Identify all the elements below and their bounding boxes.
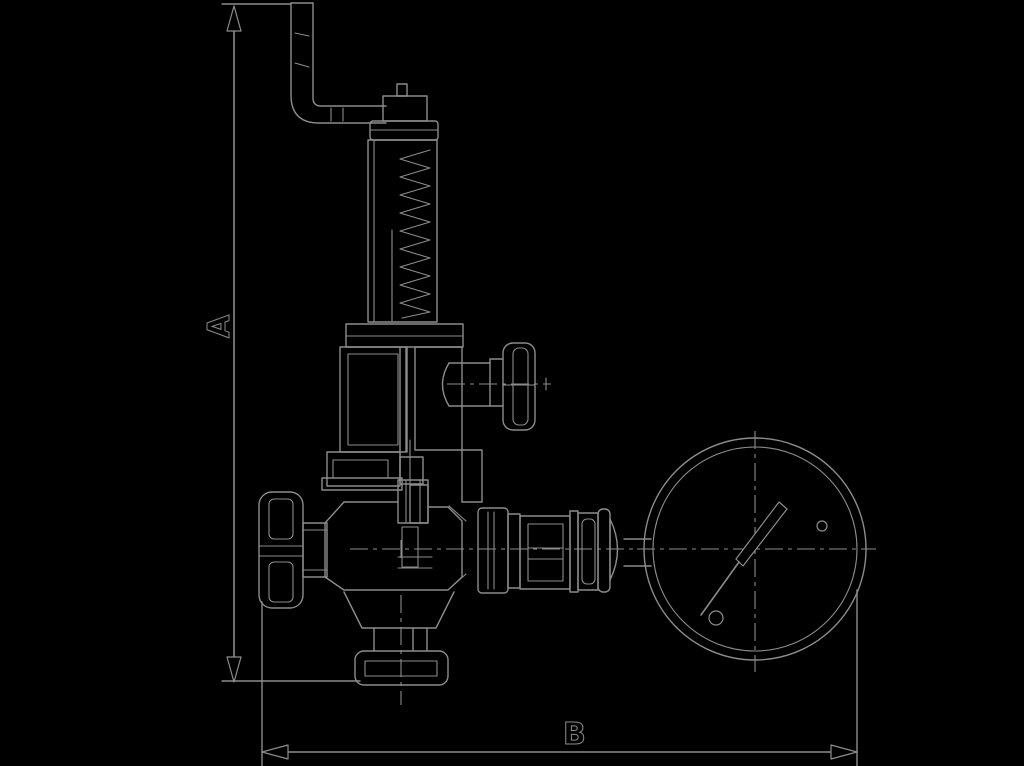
gauge-pipe bbox=[624, 539, 651, 566]
technical-drawing-canvas: A bbox=[0, 0, 1024, 766]
valve-with-gauge-drawing: A bbox=[0, 0, 1024, 766]
knob-outer bbox=[503, 343, 535, 430]
lever-bracket bbox=[291, 3, 386, 123]
union-flange bbox=[322, 452, 423, 490]
handwheel-rim bbox=[259, 492, 303, 608]
body-outline bbox=[325, 502, 462, 590]
knob-stem bbox=[490, 359, 503, 406]
body-top-flange bbox=[322, 478, 402, 490]
handwheel-stem bbox=[303, 523, 327, 577]
gauge-couplings bbox=[478, 508, 651, 593]
gauge-needle bbox=[736, 502, 787, 566]
dimension-b-label: B bbox=[563, 717, 586, 752]
gauge-screw-icon bbox=[817, 521, 827, 531]
outlet-assembly bbox=[344, 592, 454, 705]
spindle-column bbox=[410, 485, 428, 523]
cap-stem bbox=[397, 84, 407, 96]
spring-housing bbox=[346, 140, 463, 347]
knob-inner bbox=[513, 348, 528, 425]
gauge-screw-icon bbox=[709, 611, 723, 625]
gauge-needle-tail bbox=[701, 562, 739, 615]
dimension-a-arrow-bottom-icon bbox=[227, 657, 241, 682]
dimension-b-arrow-left-icon bbox=[262, 745, 288, 759]
cap-body bbox=[383, 96, 427, 121]
handwheel bbox=[259, 492, 327, 608]
pressure-gauge bbox=[637, 431, 876, 672]
handwheel-hub bbox=[259, 546, 303, 556]
spring-coil bbox=[400, 150, 430, 318]
gland bbox=[400, 440, 410, 483]
dimension-b: B bbox=[262, 590, 857, 766]
body-taper bbox=[344, 592, 454, 628]
bracket-outer-edge bbox=[291, 3, 386, 123]
left-chamber bbox=[340, 347, 406, 452]
chamfer-hatch bbox=[449, 506, 466, 589]
dimension-a-label: A bbox=[202, 314, 237, 338]
dimension-b-arrow-right-icon bbox=[831, 745, 857, 759]
bonnet-mid-body bbox=[340, 347, 482, 523]
branch-drop bbox=[462, 450, 482, 502]
dimension-a-arrow-top-icon bbox=[227, 6, 241, 31]
bracket-inner-edge bbox=[313, 3, 386, 106]
valve-top-cap bbox=[370, 84, 438, 140]
